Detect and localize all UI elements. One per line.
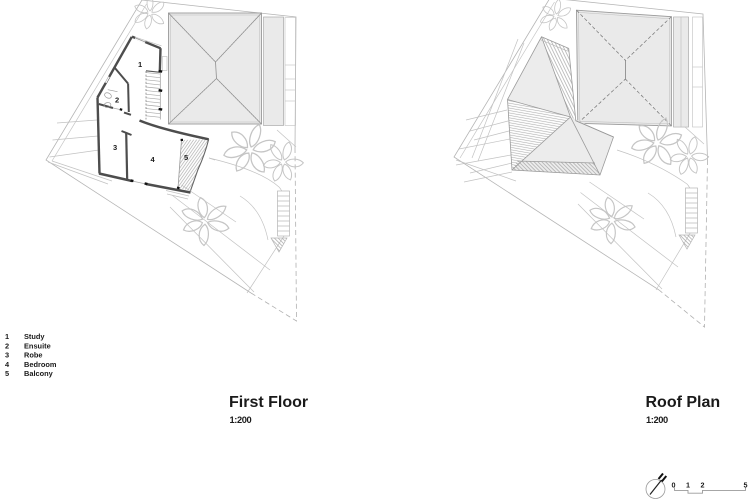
svg-text:1:200: 1:200 (230, 415, 252, 425)
svg-text:Study: Study (24, 332, 45, 341)
svg-text:1: 1 (5, 332, 9, 341)
svg-text:Robe: Robe (24, 351, 42, 360)
svg-text:3: 3 (5, 351, 9, 360)
svg-text:Balcony: Balcony (24, 369, 54, 378)
svg-text:1: 1 (138, 60, 142, 69)
svg-text:2: 2 (5, 341, 9, 350)
svg-text:2: 2 (115, 96, 119, 105)
svg-text:0: 0 (672, 481, 676, 490)
svg-text:2: 2 (701, 481, 705, 490)
svg-text:Bedroom: Bedroom (24, 360, 57, 369)
svg-text:5: 5 (5, 369, 9, 378)
svg-text:3: 3 (113, 143, 117, 152)
svg-text:1:200: 1:200 (646, 415, 668, 425)
svg-text:1: 1 (686, 481, 690, 490)
svg-text:5: 5 (744, 481, 748, 490)
svg-text:Roof Plan: Roof Plan (646, 394, 721, 411)
svg-text:5: 5 (184, 153, 188, 162)
svg-text:Ensuite: Ensuite (24, 341, 51, 350)
svg-text:First Floor: First Floor (229, 394, 308, 411)
